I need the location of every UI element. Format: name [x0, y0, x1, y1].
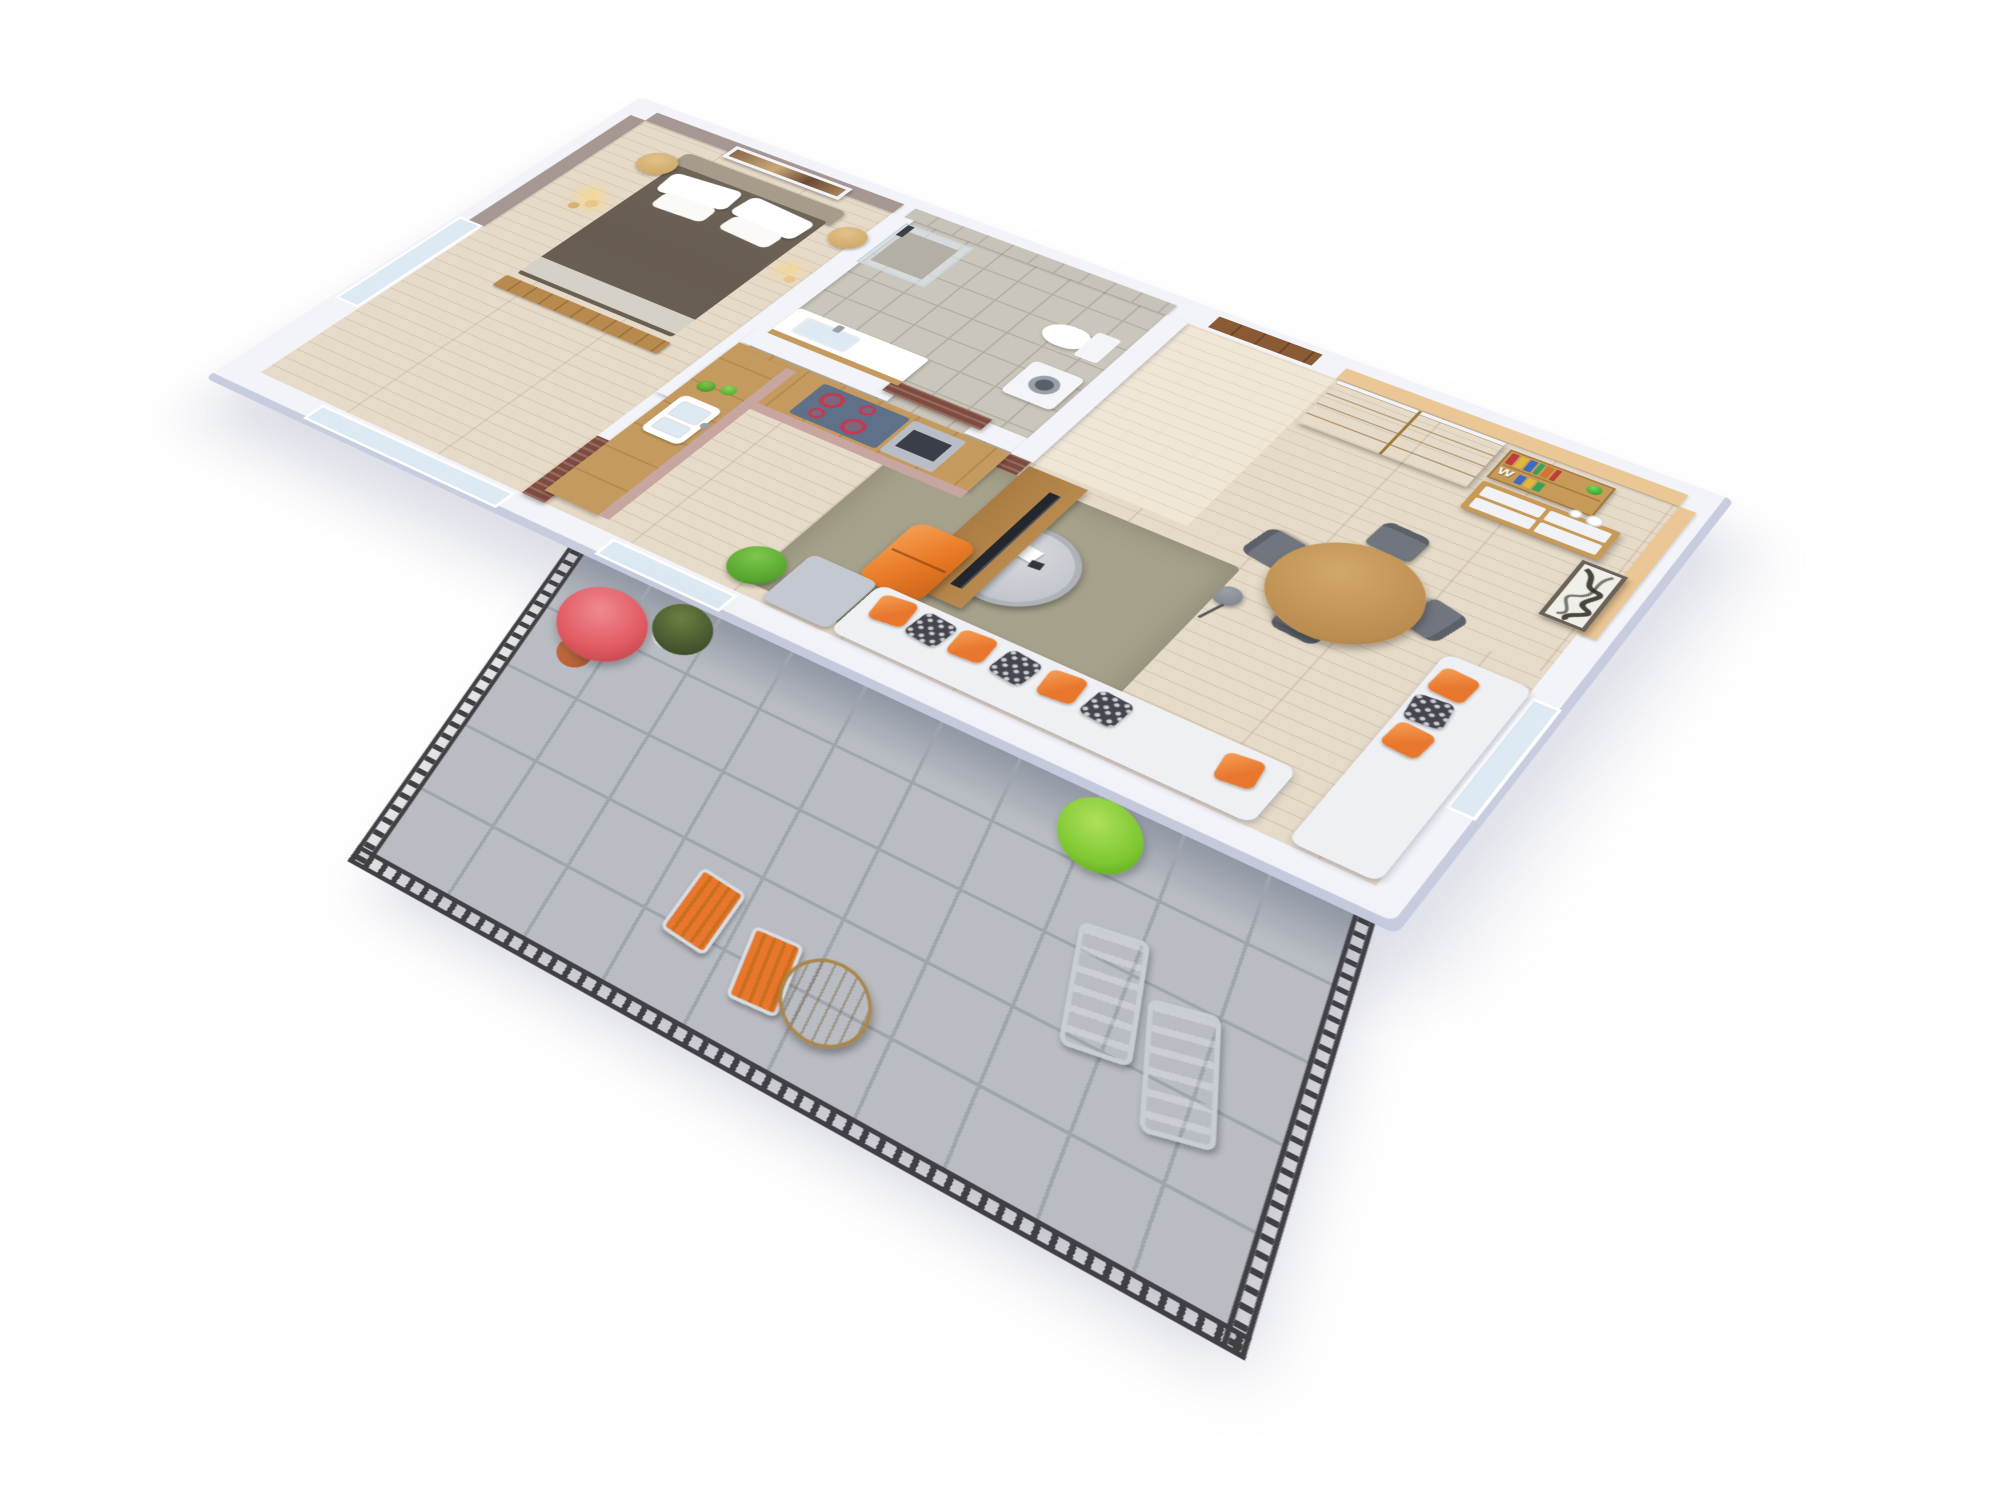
balcony-railing-left — [347, 547, 584, 870]
lounge-chair — [1139, 998, 1221, 1152]
apartment-scene: W — [0, 84, 1897, 1479]
orange-folding-chair — [660, 867, 747, 957]
balcony-railing-right — [1220, 914, 1375, 1361]
lounge-chair — [1058, 921, 1150, 1068]
balcony-railing-front — [347, 845, 1251, 1361]
green-vase — [1584, 484, 1605, 497]
render-canvas: W — [0, 0, 2000, 1500]
